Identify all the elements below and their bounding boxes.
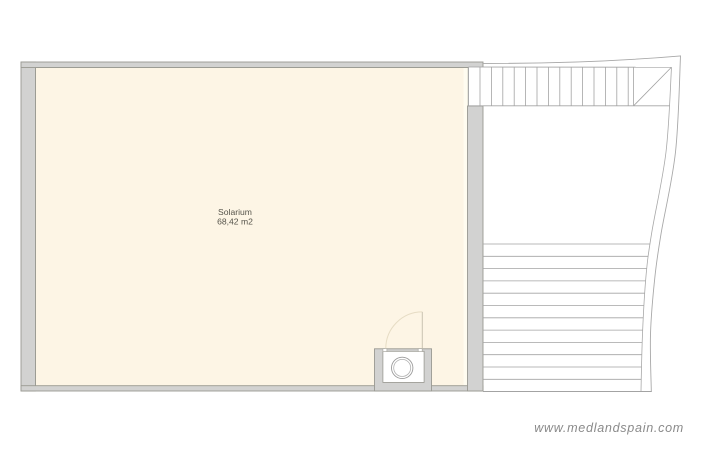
svg-text:68,42 m2: 68,42 m2 <box>217 217 253 227</box>
svg-text:Solarium: Solarium <box>218 207 252 217</box>
svg-text:www.medlandspain.com: www.medlandspain.com <box>534 421 684 435</box>
